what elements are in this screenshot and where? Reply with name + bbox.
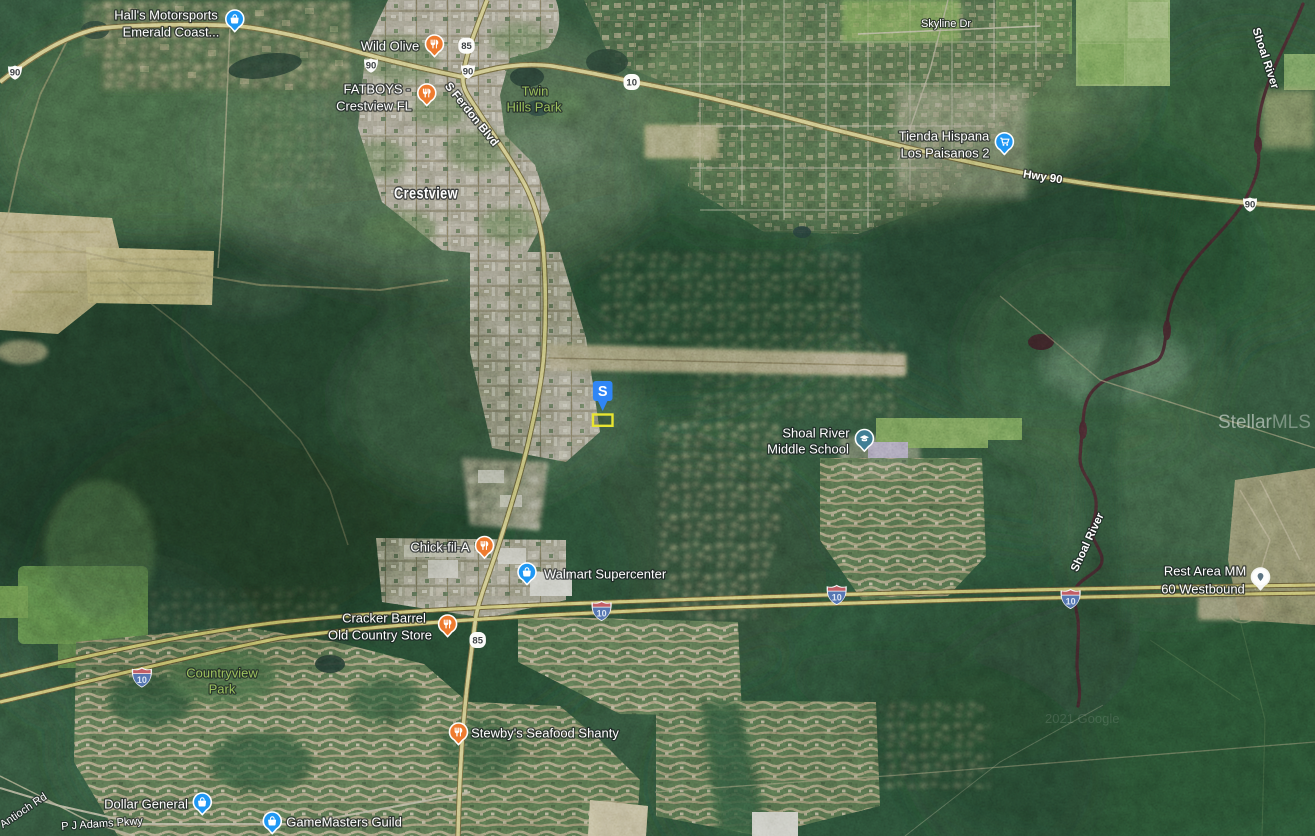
svg-text:2021 Google: 2021 Google (1045, 711, 1119, 726)
svg-text:90: 90 (10, 68, 21, 79)
svg-text:Stewby's Seafood Shanty: Stewby's Seafood Shanty (471, 726, 619, 741)
svg-text:Tienda Hispana: Tienda Hispana (899, 129, 990, 144)
svg-text:FATBOYS -: FATBOYS - (344, 82, 411, 97)
svg-text:Shoal River: Shoal River (782, 426, 850, 441)
svg-text:Rest Area MM: Rest Area MM (1164, 564, 1246, 579)
svg-text:85: 85 (461, 41, 472, 52)
svg-text:Crestview FL: Crestview FL (336, 99, 412, 114)
svg-text:90: 90 (1245, 200, 1256, 211)
svg-text:Skyline Dr: Skyline Dr (921, 18, 971, 30)
svg-text:Emerald Coast...: Emerald Coast... (123, 25, 220, 40)
svg-text:Walmart Supercenter: Walmart Supercenter (544, 567, 667, 582)
svg-text:90: 90 (463, 67, 474, 78)
svg-text:Chick-fil-A: Chick-fil-A (410, 540, 470, 555)
svg-text:S: S (598, 384, 608, 400)
svg-text:Old Country Store: Old Country Store (328, 628, 432, 643)
svg-text:Dollar General: Dollar General (104, 797, 188, 812)
svg-text:Middle School: Middle School (767, 442, 849, 457)
svg-text:10: 10 (137, 675, 147, 685)
svg-text:10: 10 (626, 78, 637, 89)
svg-text:Countryview: Countryview (186, 666, 258, 681)
svg-text:Twin: Twin (522, 84, 549, 99)
svg-text:10: 10 (1066, 597, 1076, 607)
svg-text:Cracker Barrel: Cracker Barrel (342, 611, 426, 626)
svg-text:Hall's Motorsports: Hall's Motorsports (114, 8, 218, 23)
svg-text:GameMasters Guild: GameMasters Guild (286, 815, 402, 830)
svg-text:10: 10 (597, 609, 607, 619)
svg-text:60 Westbound: 60 Westbound (1161, 582, 1245, 597)
svg-text:Los Paisanos 2: Los Paisanos 2 (901, 146, 990, 161)
svg-text:10: 10 (832, 593, 842, 603)
svg-text:Park: Park (209, 682, 236, 697)
svg-text:90: 90 (366, 61, 377, 72)
svg-text:StellarMLS: StellarMLS (1218, 412, 1311, 433)
svg-text:Hills Park: Hills Park (507, 100, 562, 115)
svg-text:Crestview: Crestview (394, 186, 458, 203)
svg-text:Wild Olive: Wild Olive (361, 39, 420, 54)
svg-text:85: 85 (472, 636, 483, 647)
